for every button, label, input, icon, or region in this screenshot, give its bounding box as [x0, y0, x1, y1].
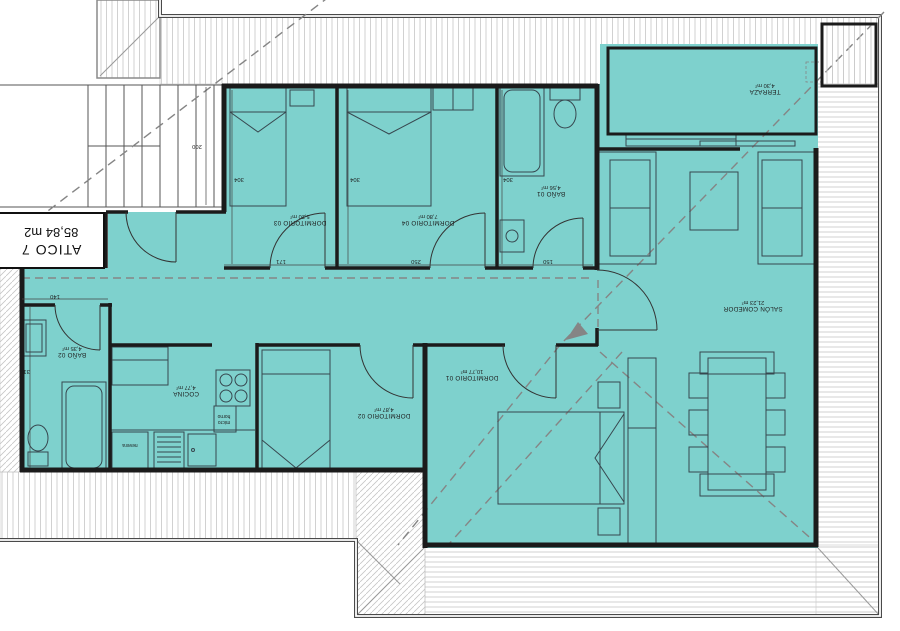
room-label-dormitorio-04: DORMITORIO 04 7,80 m² — [402, 212, 455, 226]
room-label-terraza: TERRAZA 4,30 m² — [749, 81, 780, 95]
plan-title: ATICO 7 — [21, 240, 81, 258]
room-label-dormitorio-03: DORMITORIO 03 5,20 m² — [274, 212, 327, 226]
plan-total-area: 85,84 m2 — [21, 224, 81, 240]
dim-dorm03-width: 171 — [276, 258, 286, 264]
room-label-dormitorio-01: DORMITORIO 01 10,77 m² — [446, 367, 499, 381]
staircase — [0, 85, 222, 207]
room-label-dormitorio-02: DORMITORIO 02 4,87 m² — [358, 405, 411, 419]
chimney-block — [822, 24, 876, 86]
dim-bano02-depth: 310 — [20, 368, 30, 374]
floor-plan-page: ATICO 7 85,84 m2 DORMITORIO 03 5,20 m² D… — [0, 0, 900, 631]
dim-bano01-width: 150 — [543, 258, 553, 264]
dim-dorm03-depth: 304 — [234, 176, 244, 182]
title-text: ATICO 7 85,84 m2 — [21, 224, 81, 258]
dim-stairs-width: 200 — [192, 143, 202, 149]
title-block: ATICO 7 85,84 m2 — [0, 212, 105, 269]
fridge-label: nevera — [122, 441, 137, 447]
dim-dorm04-width: 250 — [411, 258, 421, 264]
dim-bano02-door: 140 — [50, 293, 60, 299]
microwave-oven-label: micro horno — [211, 412, 237, 424]
room-label-cocina: COCINA 4,77 m² — [173, 383, 199, 397]
room-label-bano-02: BAÑO 02 4,35 m² — [58, 344, 86, 358]
room-label-bano-01: BAÑO 01 4,56 m² — [537, 183, 565, 197]
dim-bano01-depth: 304 — [503, 176, 513, 182]
dim-dorm04-depth: 304 — [350, 176, 360, 182]
room-label-salon: SALÓN COMEDOR 21,23 m² — [723, 298, 782, 312]
